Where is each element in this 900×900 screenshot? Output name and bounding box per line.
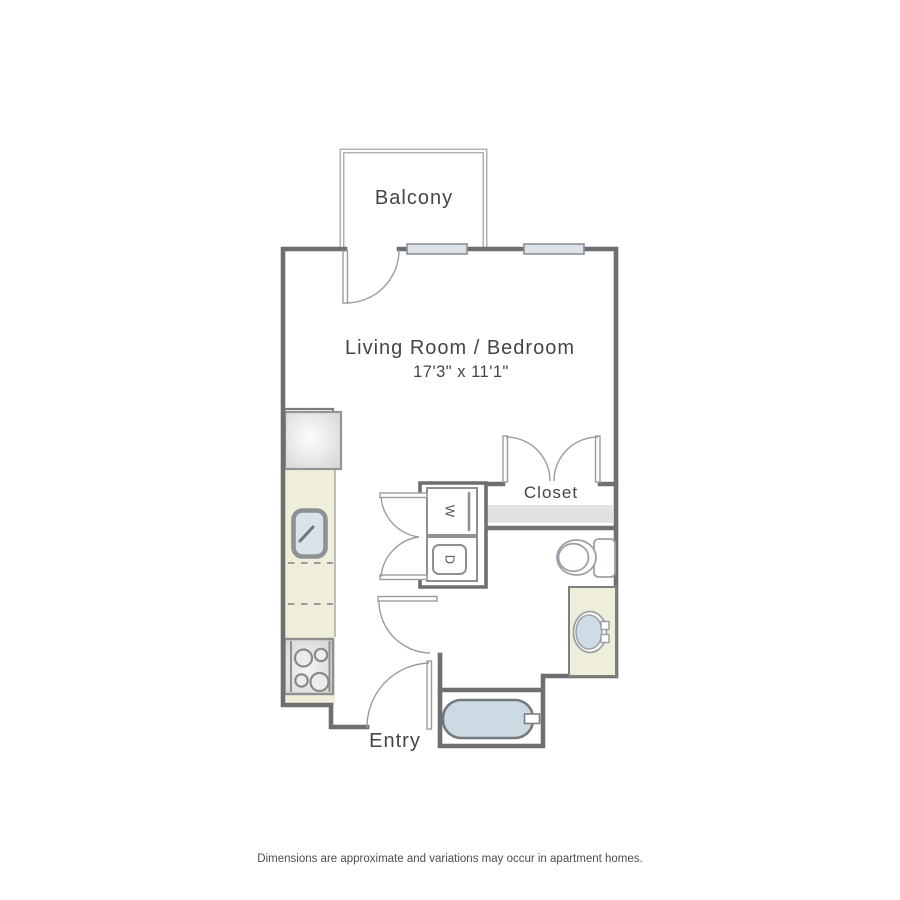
toilet-tank [594, 539, 615, 577]
bathroom-door-leaf [378, 597, 437, 602]
toilet-bowl-inner [559, 544, 589, 572]
burner-icon [311, 673, 329, 691]
closet-door-leaf-left [503, 436, 508, 482]
closet-door-leaf-right [596, 436, 601, 482]
floor-plan-svg: W D [0, 0, 900, 900]
refrigerator [285, 412, 341, 469]
kitchen [283, 409, 341, 705]
wd-door-leaf-top [380, 493, 427, 498]
balcony-door-leaf [343, 251, 348, 303]
vanity [569, 587, 616, 676]
stove [285, 639, 334, 694]
burner-icon [315, 649, 327, 661]
window [407, 244, 467, 254]
kitchen-sink-basin [294, 511, 326, 557]
toilet [557, 539, 615, 577]
dryer-label: D [443, 555, 458, 564]
burner-icon [295, 674, 307, 686]
vanity-sink-basin [576, 615, 602, 649]
disclaimer-text: Dimensions are approximate and variation… [257, 853, 642, 865]
closet-label: Closet [524, 483, 578, 502]
entry-door-leaf [427, 661, 432, 729]
kitchen-sink [294, 511, 326, 557]
closet-shelf [485, 505, 613, 523]
living-room-label: Living Room / Bedroom [345, 337, 575, 359]
balcony-label: Balcony [375, 187, 453, 209]
bathtub [443, 700, 540, 738]
entry-label: Entry [369, 730, 421, 752]
background [0, 0, 900, 900]
living-room-dimensions: 17'3" x 11'1" [413, 363, 509, 381]
burner-icon [295, 650, 312, 667]
window [524, 244, 584, 254]
floor-plan: W D [0, 0, 900, 900]
sink-faucet-icon [601, 622, 609, 630]
washer-label: W [443, 505, 458, 518]
tub-faucet-icon [525, 714, 540, 724]
wd-door-leaf-bottom [380, 575, 427, 580]
bathtub-basin [443, 700, 533, 738]
sink-faucet-icon [601, 635, 609, 643]
